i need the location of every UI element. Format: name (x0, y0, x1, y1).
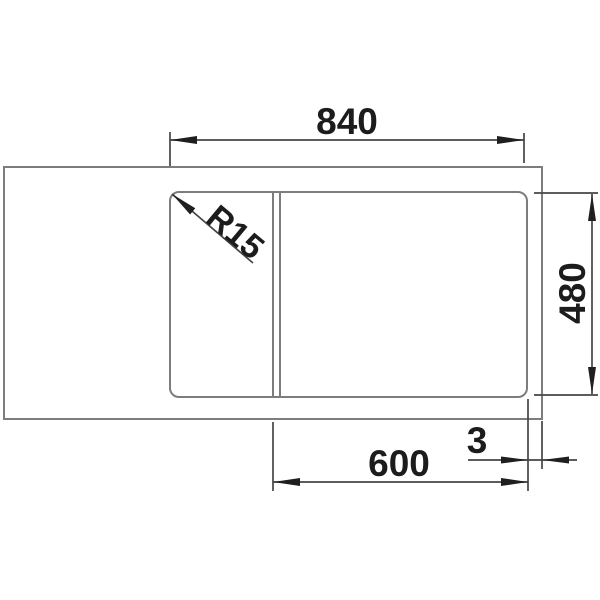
radius-label-r15: R15 (199, 198, 271, 267)
arrow-600-right (501, 478, 528, 486)
arrow-480-bottom (588, 367, 596, 394)
arrow-840-right (497, 136, 524, 144)
dimension-lines-group (170, 132, 598, 491)
dimension-label-3: 3 (467, 420, 488, 461)
sink-technical-drawing: 840 480 600 3 R15 (0, 0, 600, 600)
drawing-canvas: 840 480 600 3 R15 (0, 0, 600, 600)
dimension-label-600: 600 (368, 443, 430, 484)
arrowheads-group (170, 136, 596, 486)
arrow-480-top (588, 194, 596, 221)
arrow-840-left (170, 136, 197, 144)
dimension-label-840: 840 (316, 101, 378, 142)
arrow-600-left (273, 478, 300, 486)
labels-group: 840 480 600 3 R15 (199, 101, 593, 484)
arrow-3-right (542, 457, 569, 464)
arrow-r15 (172, 194, 195, 215)
arrow-3-left (501, 457, 528, 464)
dimension-label-480: 480 (552, 262, 593, 324)
sink-outline-group (4, 167, 542, 419)
